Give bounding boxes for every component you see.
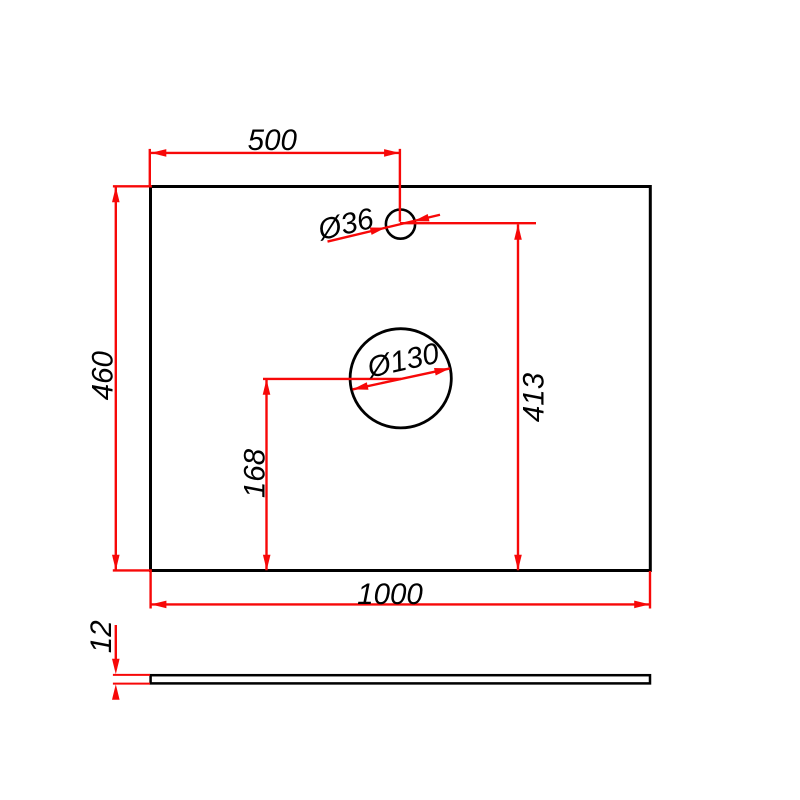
svg-text:Ø130: Ø130 [363, 337, 442, 385]
svg-text:1000: 1000 [357, 578, 423, 611]
svg-text:460: 460 [86, 351, 119, 401]
svg-text:500: 500 [248, 124, 298, 157]
svg-text:413: 413 [518, 372, 551, 422]
svg-text:12: 12 [85, 620, 118, 653]
svg-text:168: 168 [239, 448, 272, 498]
svg-text:Ø36: Ø36 [314, 202, 377, 247]
